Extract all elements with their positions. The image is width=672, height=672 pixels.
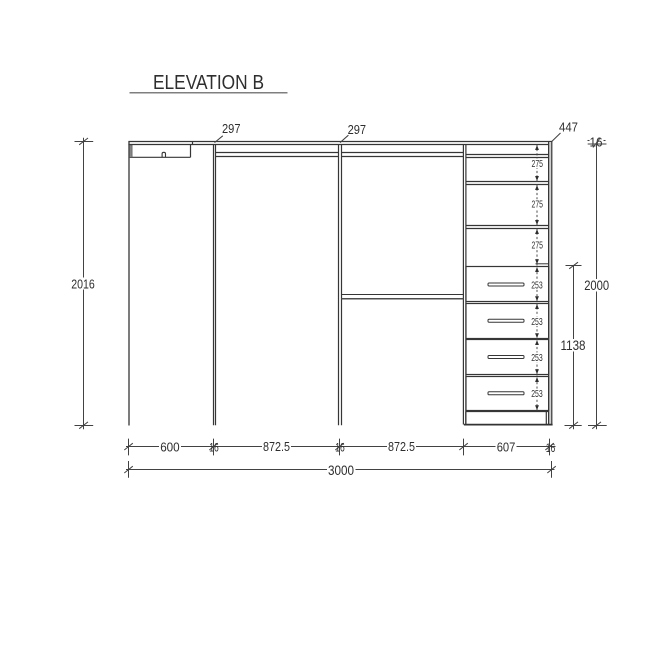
svg-text:2016: 2016 bbox=[71, 276, 95, 291]
svg-text:16: 16 bbox=[335, 440, 345, 454]
svg-text:253: 253 bbox=[531, 316, 543, 328]
svg-text:253: 253 bbox=[531, 280, 543, 292]
svg-text:253: 253 bbox=[531, 388, 543, 400]
svg-text:872.5: 872.5 bbox=[263, 439, 290, 454]
svg-text:447: 447 bbox=[559, 120, 578, 135]
svg-text:1138: 1138 bbox=[561, 338, 586, 353]
svg-text:16: 16 bbox=[590, 136, 603, 150]
svg-text:275: 275 bbox=[532, 199, 544, 211]
svg-text:872.5: 872.5 bbox=[388, 439, 415, 454]
svg-text:16: 16 bbox=[546, 441, 556, 455]
svg-text:600: 600 bbox=[160, 439, 180, 454]
svg-text:297: 297 bbox=[348, 122, 367, 137]
svg-text:275: 275 bbox=[532, 158, 544, 170]
svg-text:ELEVATION B: ELEVATION B bbox=[153, 72, 264, 94]
svg-text:16: 16 bbox=[209, 440, 219, 454]
svg-text:2000: 2000 bbox=[584, 278, 609, 293]
svg-text:275: 275 bbox=[532, 240, 544, 252]
svg-text:607: 607 bbox=[497, 439, 516, 454]
svg-text:297: 297 bbox=[222, 121, 241, 136]
svg-text:3000: 3000 bbox=[328, 463, 354, 478]
svg-text:253: 253 bbox=[531, 352, 543, 364]
